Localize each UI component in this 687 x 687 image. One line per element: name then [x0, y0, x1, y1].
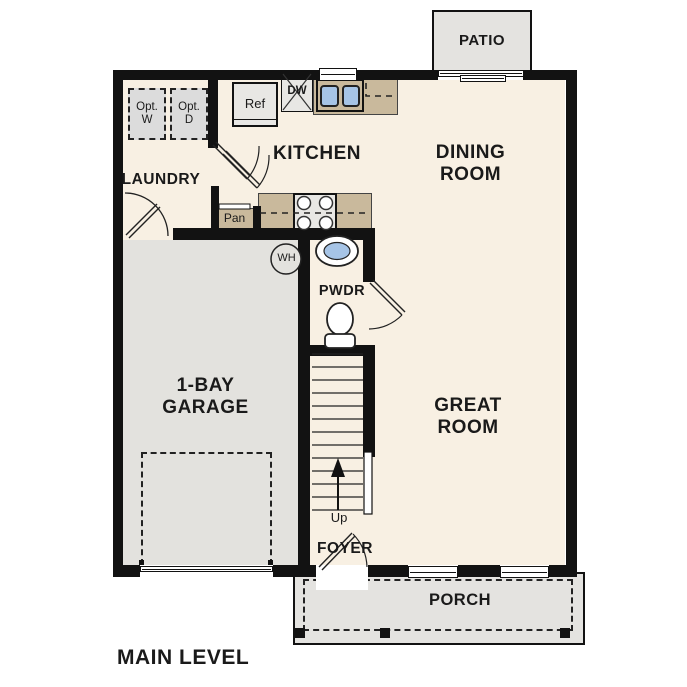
- sink-basin: [342, 85, 360, 107]
- wall-right: [566, 70, 577, 577]
- opt-dryer-label: Opt. D: [178, 101, 200, 127]
- wall-bottom: [458, 565, 500, 577]
- great-room-window: [408, 566, 458, 578]
- kitchen-window: [319, 68, 357, 81]
- wall-top: [113, 70, 319, 80]
- wall-stairs-right: [363, 345, 375, 457]
- pantry-label: Pan: [214, 212, 255, 226]
- powder-label: PWDR: [308, 283, 376, 300]
- foyer-label: FOYER: [311, 540, 379, 558]
- stove-unit: [293, 193, 337, 231]
- garage-door-track: [141, 452, 272, 565]
- wall-bottom: [368, 565, 408, 577]
- wall-powder-right: [363, 228, 375, 282]
- water-heater-label: WH: [271, 252, 302, 265]
- kitchen-label: KITCHEN: [253, 143, 381, 165]
- wall-top: [356, 70, 438, 80]
- great-room-label: GREAT ROOM: [403, 395, 533, 440]
- garage-door-slab: [140, 566, 273, 572]
- refrigerator-label: Ref: [245, 97, 265, 112]
- opt-washer-box: Opt. W: [128, 88, 166, 140]
- patio-label: PATIO: [432, 32, 532, 50]
- porch-post: [295, 628, 305, 638]
- porch-post: [560, 628, 570, 638]
- foyer-door-threshold: [316, 565, 368, 590]
- wall-garage-top: [173, 228, 375, 240]
- wall-left: [113, 70, 123, 577]
- wall-garage-right: [298, 228, 310, 577]
- wall-laundry-right: [208, 80, 218, 148]
- garage-label: 1-BAY GARAGE: [128, 375, 283, 420]
- dishwasher-label: DW: [281, 85, 313, 98]
- main-level-title: MAIN LEVEL: [117, 646, 357, 671]
- opt-dryer-box: Opt. D: [170, 88, 208, 140]
- porch-label: PORCH: [330, 591, 590, 610]
- wall-bottom: [113, 565, 140, 577]
- patio-slider-panel: [460, 75, 506, 82]
- stairs-up-label: Up: [324, 511, 354, 526]
- floor-plan: Ref Opt. W Opt. D: [0, 0, 687, 687]
- sink-basin: [320, 85, 339, 107]
- laundry-label: LAUNDRY: [105, 171, 217, 189]
- porch-post: [380, 628, 390, 638]
- wall-bottom: [549, 565, 577, 577]
- great-room-window: [500, 566, 549, 578]
- opt-washer-label: Opt. W: [136, 101, 158, 127]
- refrigerator-handle: [234, 119, 276, 120]
- dining-room-label: DINING ROOM: [408, 142, 533, 187]
- refrigerator-box: Ref: [232, 82, 278, 127]
